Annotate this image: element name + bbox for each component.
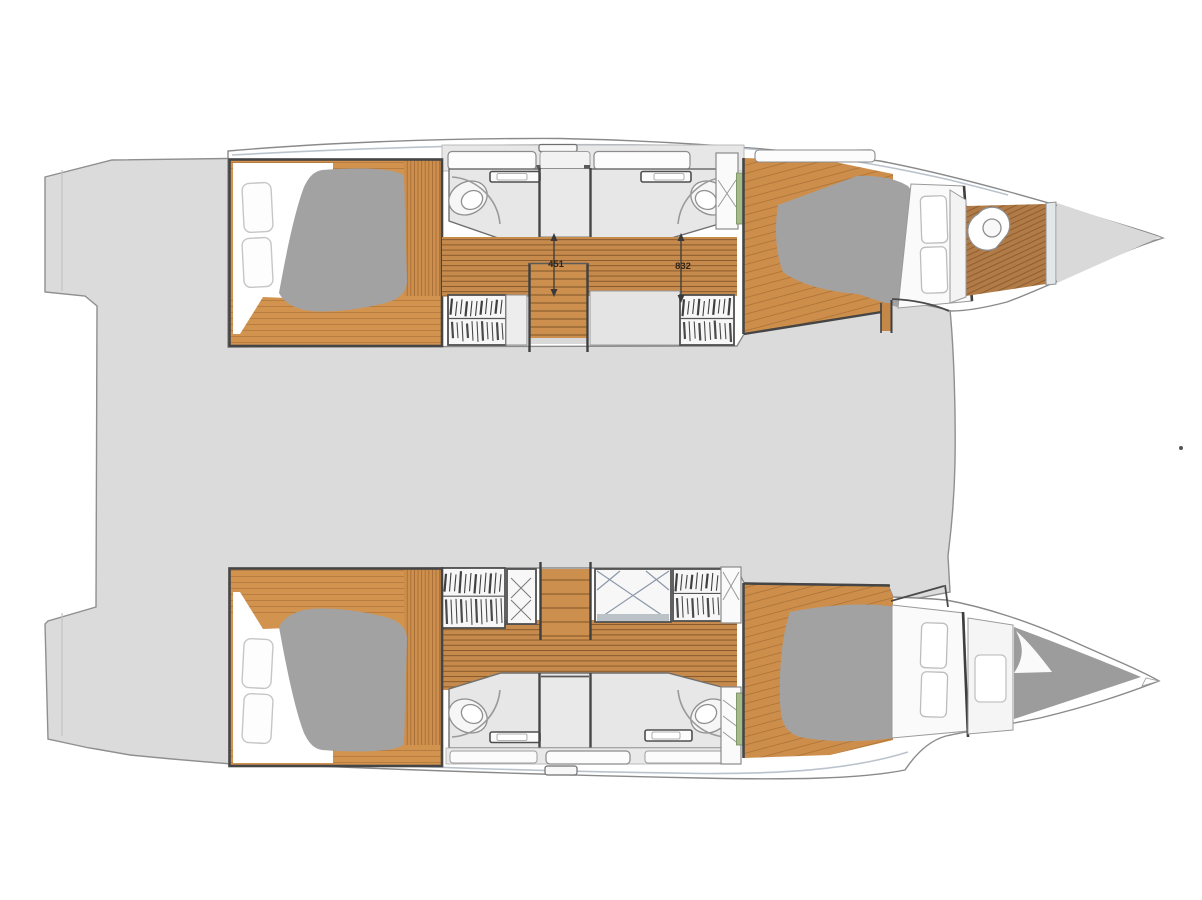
svg-text:451: 451 (548, 259, 565, 270)
svg-text:832: 832 (675, 261, 691, 272)
